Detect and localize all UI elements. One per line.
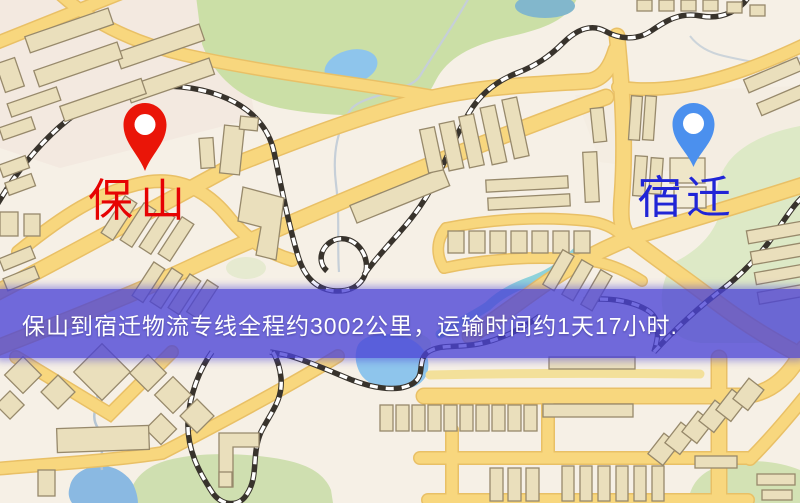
- map-viewport: 保山 宿迁 保山到宿迁物流专线全程约3002公里，运输时间约1天17小时.: [0, 0, 800, 503]
- origin-pin-body[interactable]: [124, 103, 167, 171]
- map-canvas[interactable]: [0, 0, 800, 503]
- destination-city-label: 宿迁: [637, 175, 735, 220]
- destination-pin-body[interactable]: [673, 103, 715, 167]
- destination-pin-hole: [683, 113, 704, 134]
- origin-pin-hole: [135, 114, 156, 135]
- destination-pin-icon[interactable]: [670, 101, 717, 169]
- origin-city-label: 保山: [88, 178, 192, 223]
- origin-pin-icon[interactable]: [121, 101, 169, 173]
- route-info-text: 保山到宿迁物流专线全程约3002公里，运输时间约1天17小时.: [0, 307, 678, 341]
- route-info-banner: 保山到宿迁物流专线全程约3002公里，运输时间约1天17小时.: [0, 289, 800, 358]
